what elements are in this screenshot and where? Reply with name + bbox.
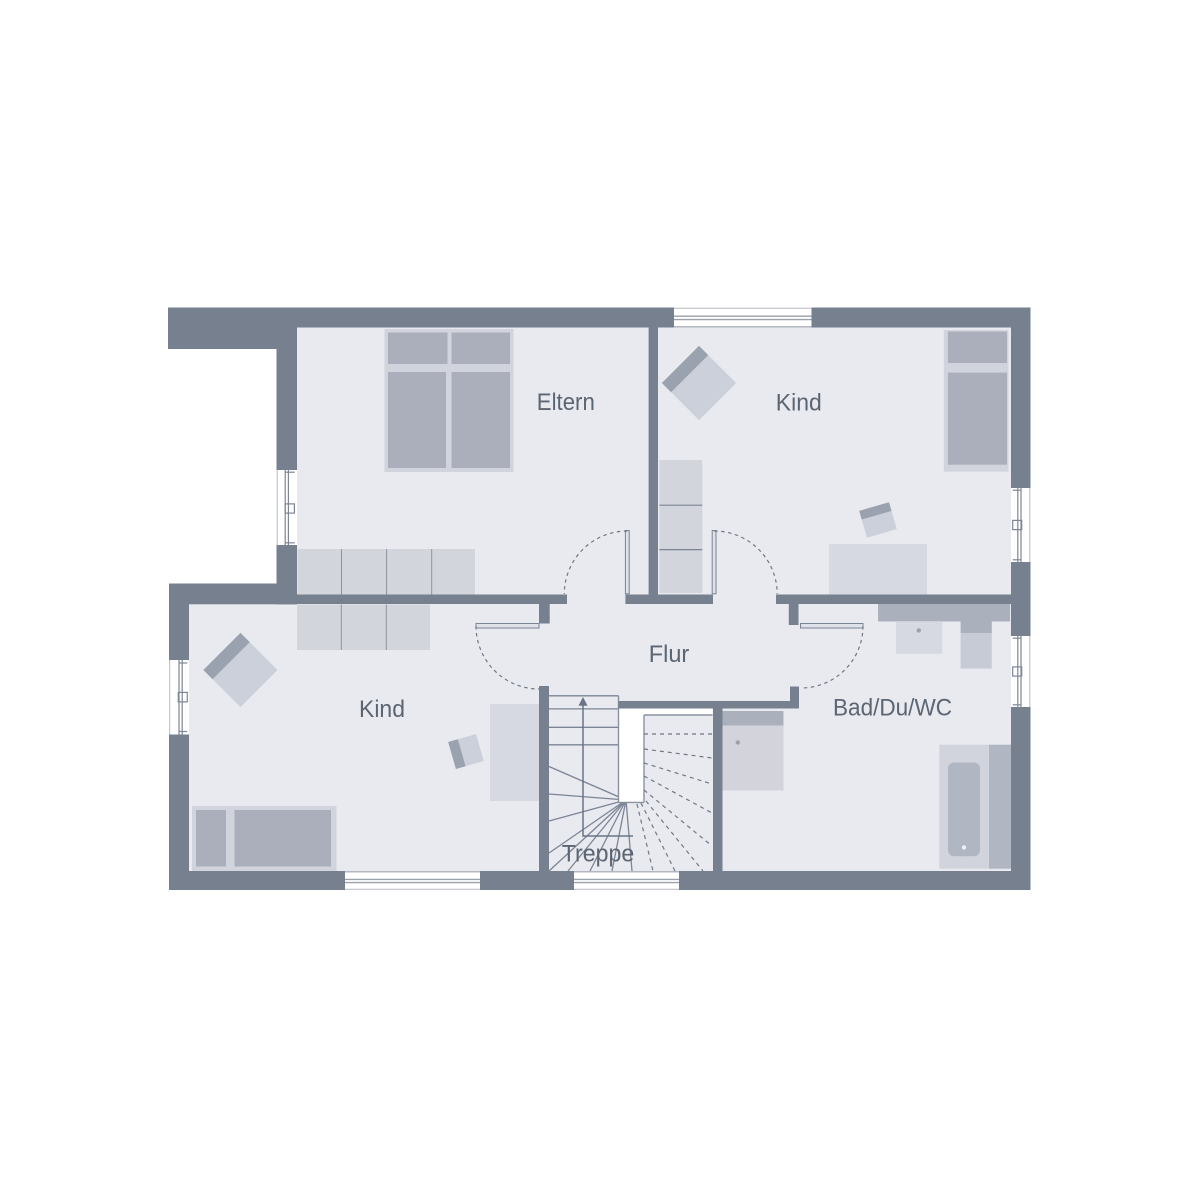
svg-text:Bad/Du/WC: Bad/Du/WC bbox=[833, 695, 952, 722]
svg-text:Treppe: Treppe bbox=[562, 841, 635, 868]
svg-text:Kind: Kind bbox=[359, 696, 405, 723]
svg-text:Flur: Flur bbox=[649, 641, 690, 668]
svg-text:Kind: Kind bbox=[776, 390, 822, 417]
svg-text:Eltern: Eltern bbox=[537, 389, 595, 416]
